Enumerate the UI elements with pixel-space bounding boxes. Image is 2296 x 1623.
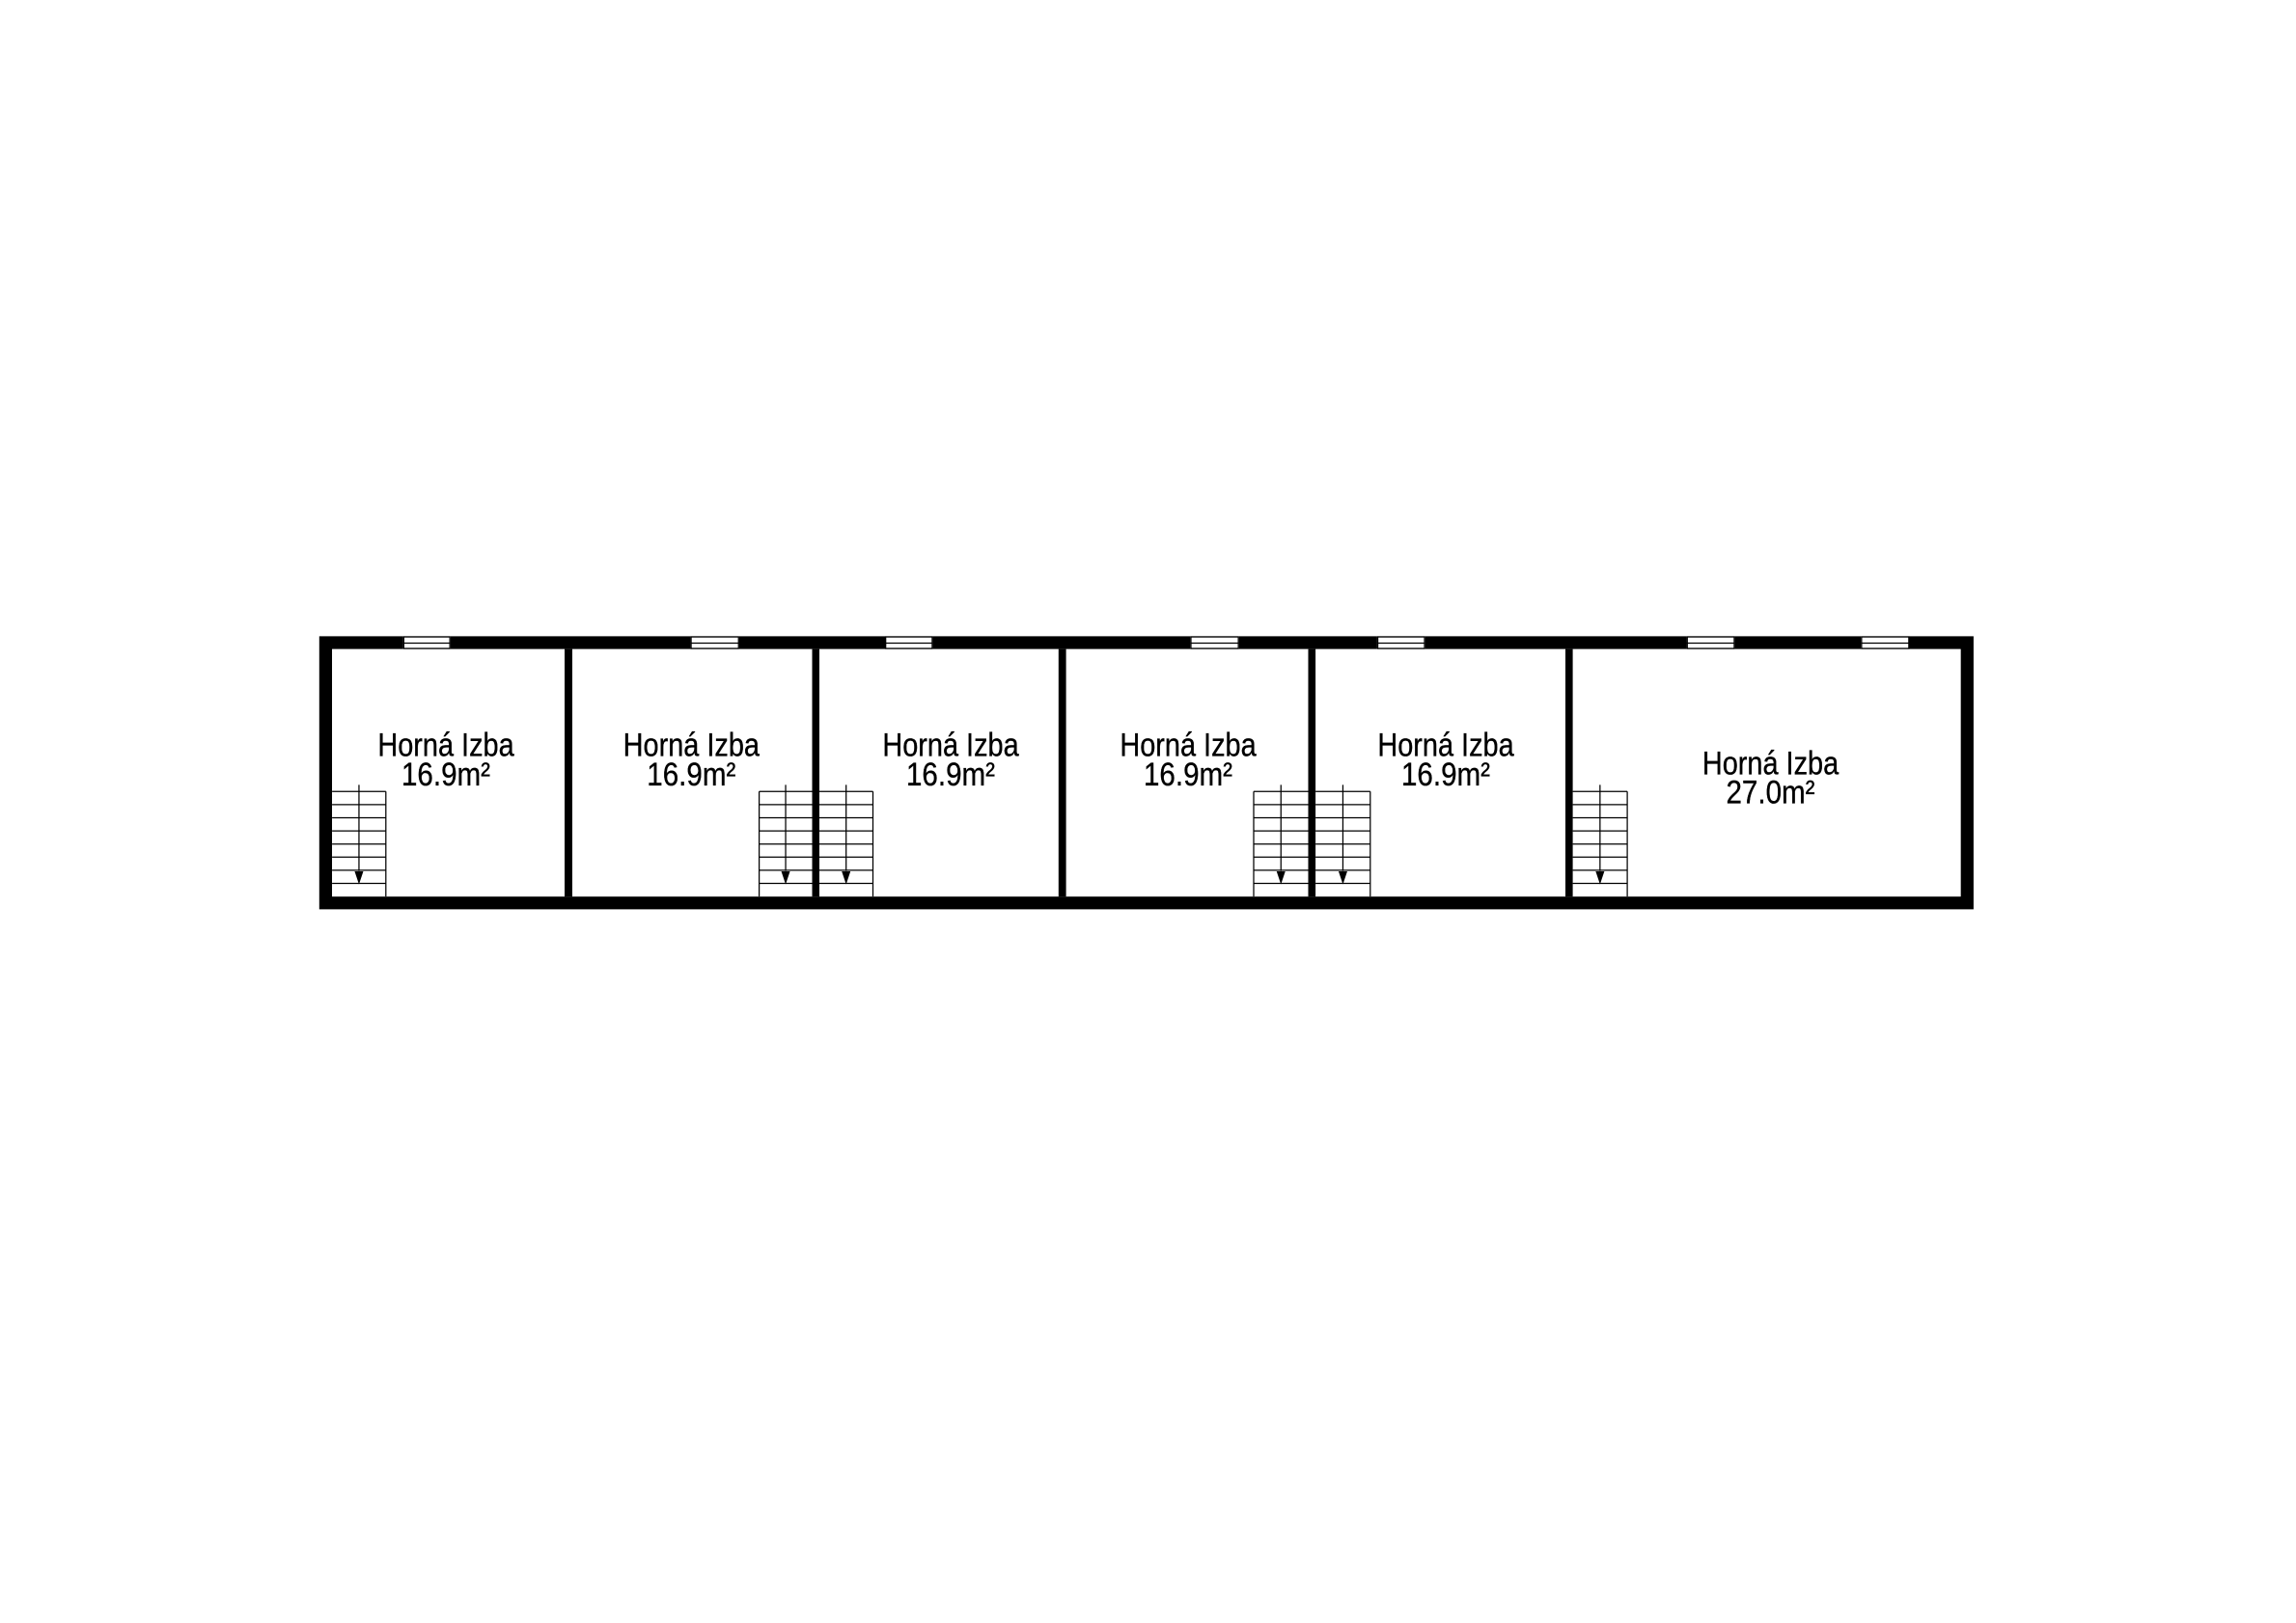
svg-text:16.9m²: 16.9m² (906, 756, 995, 792)
svg-text:16.9m²: 16.9m² (1144, 756, 1232, 792)
svg-text:16.9m²: 16.9m² (647, 756, 735, 792)
svg-text:27.0m²: 27.0m² (1726, 774, 1814, 811)
svg-text:16.9m²: 16.9m² (1401, 756, 1490, 792)
svg-text:16.9m²: 16.9m² (401, 756, 490, 792)
